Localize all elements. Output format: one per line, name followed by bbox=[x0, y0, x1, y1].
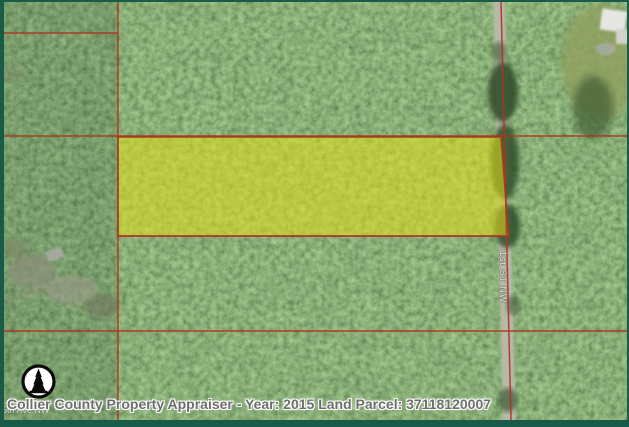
highlighted-parcel[interactable] bbox=[118, 137, 509, 236]
frame-border-left bbox=[0, 0, 4, 427]
map-caption: Collier County Property Appraiser - Year… bbox=[7, 396, 622, 412]
map-viewport[interactable]: 1st ST NW 5th Ave NW Collier County Prop… bbox=[0, 0, 629, 427]
frame-border-top bbox=[0, 0, 629, 2]
north-arrow-icon bbox=[21, 364, 56, 399]
road-name-label: 1st ST NW bbox=[498, 251, 508, 303]
frame-border-bottom bbox=[0, 420, 629, 427]
aerial-imagery bbox=[0, 0, 629, 427]
